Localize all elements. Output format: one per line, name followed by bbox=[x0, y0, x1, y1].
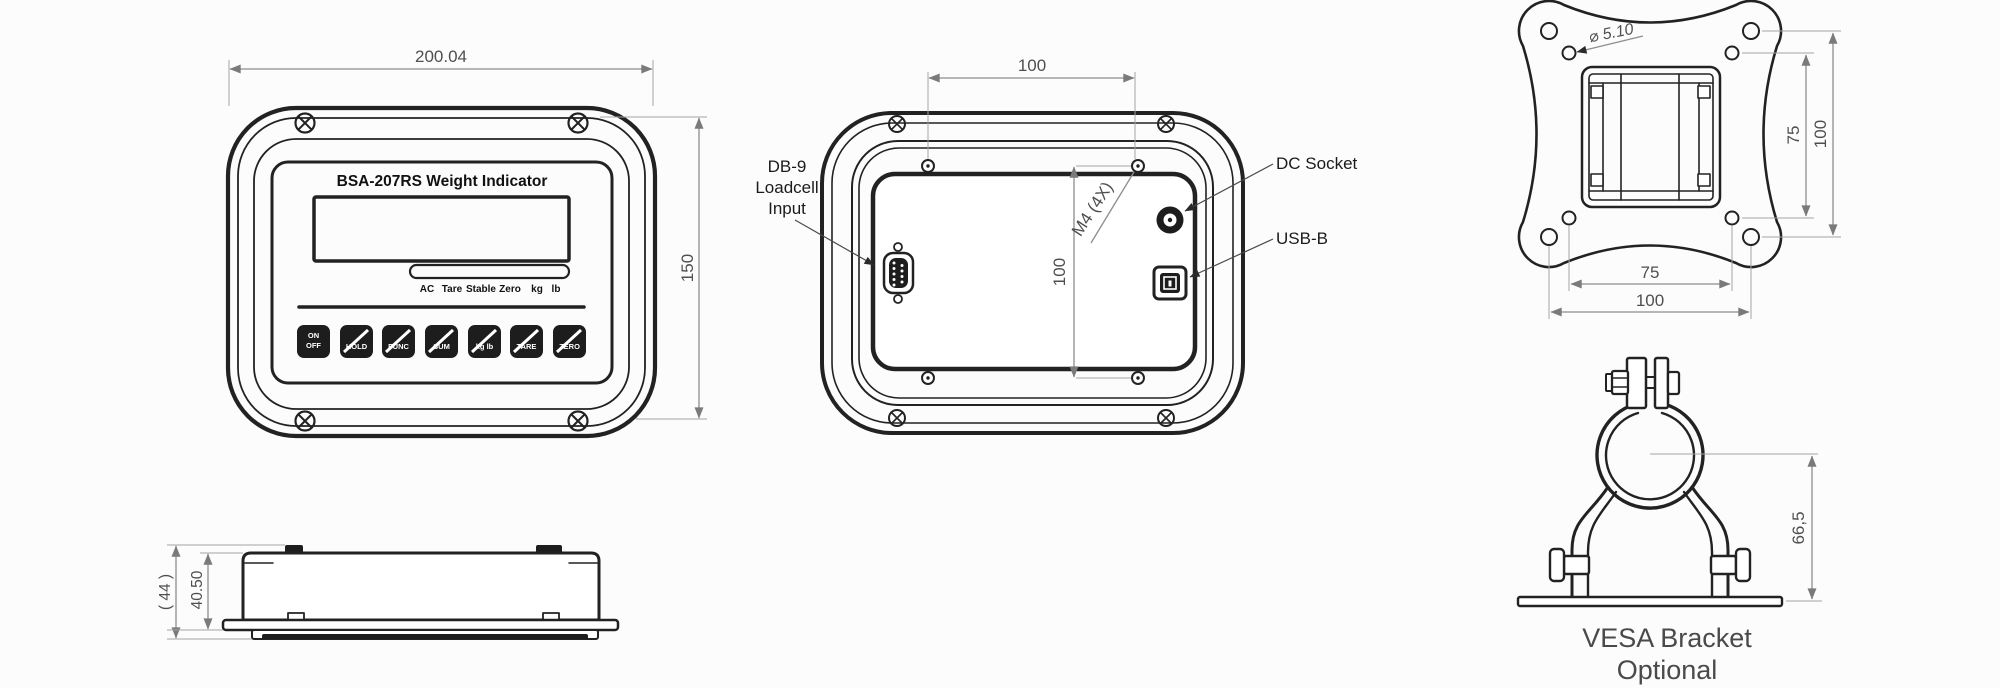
button-zero: ZERO bbox=[553, 325, 586, 358]
inner-mount-hole bbox=[1563, 47, 1576, 60]
inner-mount-hole bbox=[1726, 47, 1739, 60]
hole-diameter-callout: ⌀ 5.10 bbox=[1577, 21, 1643, 52]
svg-text:TARE: TARE bbox=[517, 342, 537, 351]
dim-side-overall-value: ( 44 ) bbox=[157, 574, 174, 610]
clamp-ring-inner bbox=[1606, 413, 1694, 499]
vesa-plate-outline bbox=[1519, 1, 1781, 267]
bracket-caption-line1: VESA Bracket bbox=[1582, 623, 1752, 653]
button-on-off: ON OFF bbox=[297, 325, 330, 358]
clamp-ring-outer bbox=[1597, 404, 1703, 508]
outer-mount-hole bbox=[1743, 229, 1759, 245]
svg-text:75: 75 bbox=[1784, 126, 1803, 145]
svg-text:HOLD: HOLD bbox=[346, 342, 368, 351]
rear-view: 100 100 M4 (4X) DB-9 Loadcell Input DC S… bbox=[755, 56, 1357, 433]
corner-screw bbox=[889, 116, 905, 132]
dim-side-body: 40.50 bbox=[167, 553, 243, 630]
status-label-lb: lb bbox=[552, 284, 561, 295]
hole-diameter-value: ⌀ 5.10 bbox=[1587, 21, 1635, 46]
corner-screw bbox=[296, 412, 315, 431]
button-func: FUNC bbox=[382, 325, 415, 358]
svg-text:SUM: SUM bbox=[433, 342, 450, 351]
keypad: ON OFF HOLD FUNC SUM kg lb bbox=[297, 325, 586, 358]
indicator-window bbox=[410, 265, 569, 278]
usb-b-label: USB-B bbox=[1190, 229, 1328, 277]
svg-text:DC Socket: DC Socket bbox=[1276, 154, 1358, 173]
svg-text:Loadcell: Loadcell bbox=[755, 178, 818, 197]
dc-socket-label: DC Socket bbox=[1185, 154, 1358, 211]
dim-rear-horizontal-value: 100 bbox=[1018, 56, 1046, 75]
svg-text:ON: ON bbox=[308, 331, 319, 340]
svg-text:100: 100 bbox=[1811, 120, 1830, 148]
dc-socket bbox=[1157, 207, 1184, 234]
side-bolt-right bbox=[1711, 549, 1750, 581]
db9-label: DB-9 Loadcell Input bbox=[755, 157, 874, 265]
svg-text:kg lb: kg lb bbox=[476, 342, 494, 351]
svg-text:OFF: OFF bbox=[306, 341, 321, 350]
product-title: BSA-207RS Weight Indicator bbox=[337, 173, 548, 190]
front-shell-inner-line bbox=[238, 118, 645, 426]
front-outer-shell bbox=[228, 108, 655, 436]
side-view: ( 44 ) 40.50 bbox=[157, 545, 618, 639]
corner-screw bbox=[569, 412, 588, 431]
svg-text:Input: Input bbox=[768, 199, 806, 218]
corner-screw bbox=[569, 114, 588, 133]
vesa-bracket-view: 66,5 VESA Bracket Optional bbox=[1518, 358, 1822, 685]
lcd-display bbox=[314, 197, 569, 261]
side-body bbox=[243, 553, 599, 620]
svg-text:75: 75 bbox=[1641, 263, 1660, 282]
side-flange bbox=[223, 620, 618, 630]
dim-plate-inner-vertical: 75 bbox=[1742, 53, 1814, 218]
dim-bracket-height-value: 66,5 bbox=[1789, 511, 1808, 544]
button-tare: TARE bbox=[510, 325, 543, 358]
rear-panel bbox=[873, 174, 1195, 369]
dim-front-width: 200.04 bbox=[229, 47, 653, 106]
svg-text:ZERO: ZERO bbox=[559, 342, 580, 351]
svg-text:USB-B: USB-B bbox=[1276, 229, 1328, 248]
top-clamp-bolt bbox=[1606, 358, 1679, 408]
bracket-caption-line2: Optional bbox=[1617, 655, 1718, 685]
corner-screw bbox=[1158, 116, 1174, 132]
dim-rear-vertical-value: 100 bbox=[1050, 258, 1069, 286]
side-bolt-left bbox=[1550, 549, 1589, 581]
inner-mount-hole bbox=[1726, 212, 1739, 225]
outer-mount-hole bbox=[1541, 23, 1557, 39]
button-unit: kg lb bbox=[468, 325, 501, 358]
status-label-kg: kg bbox=[531, 284, 543, 295]
button-hold: HOLD bbox=[340, 325, 373, 358]
technical-drawing-sheet: BSA-207RS Weight Indicator AC Tare Stabl… bbox=[0, 0, 2000, 688]
corner-screw bbox=[296, 114, 315, 133]
front-view: BSA-207RS Weight Indicator AC Tare Stabl… bbox=[228, 47, 707, 436]
bracket-base-plate bbox=[1518, 597, 1782, 606]
plate-center-bracket bbox=[1582, 67, 1720, 207]
usb-b-port bbox=[1154, 267, 1186, 299]
dim-plate-inner-horizontal: 75 bbox=[1569, 226, 1732, 291]
status-label-stable: Stable bbox=[466, 284, 496, 295]
dim-rear-horizontal: 100 bbox=[928, 56, 1135, 159]
dim-side-body-value: 40.50 bbox=[189, 570, 206, 609]
svg-text:DB-9: DB-9 bbox=[768, 157, 807, 176]
vesa-plate-view: ⌀ 5.10 75 100 75 100 bbox=[1519, 1, 1841, 319]
status-label-row: AC Tare Stable Zero kg lb bbox=[420, 284, 561, 295]
dim-front-height-value: 150 bbox=[678, 254, 697, 282]
inner-mount-hole bbox=[1563, 212, 1576, 225]
status-label-ac: AC bbox=[420, 284, 434, 295]
dim-front-width-value: 200.04 bbox=[415, 47, 467, 66]
status-label-tare: Tare bbox=[442, 284, 463, 295]
svg-text:100: 100 bbox=[1636, 291, 1664, 310]
outer-mount-hole bbox=[1743, 23, 1759, 39]
side-base-gasket bbox=[262, 634, 588, 639]
svg-text:FUNC: FUNC bbox=[388, 342, 409, 351]
outer-mount-hole bbox=[1541, 229, 1557, 245]
status-label-zero: Zero bbox=[499, 284, 521, 295]
button-sum: SUM bbox=[425, 325, 458, 358]
